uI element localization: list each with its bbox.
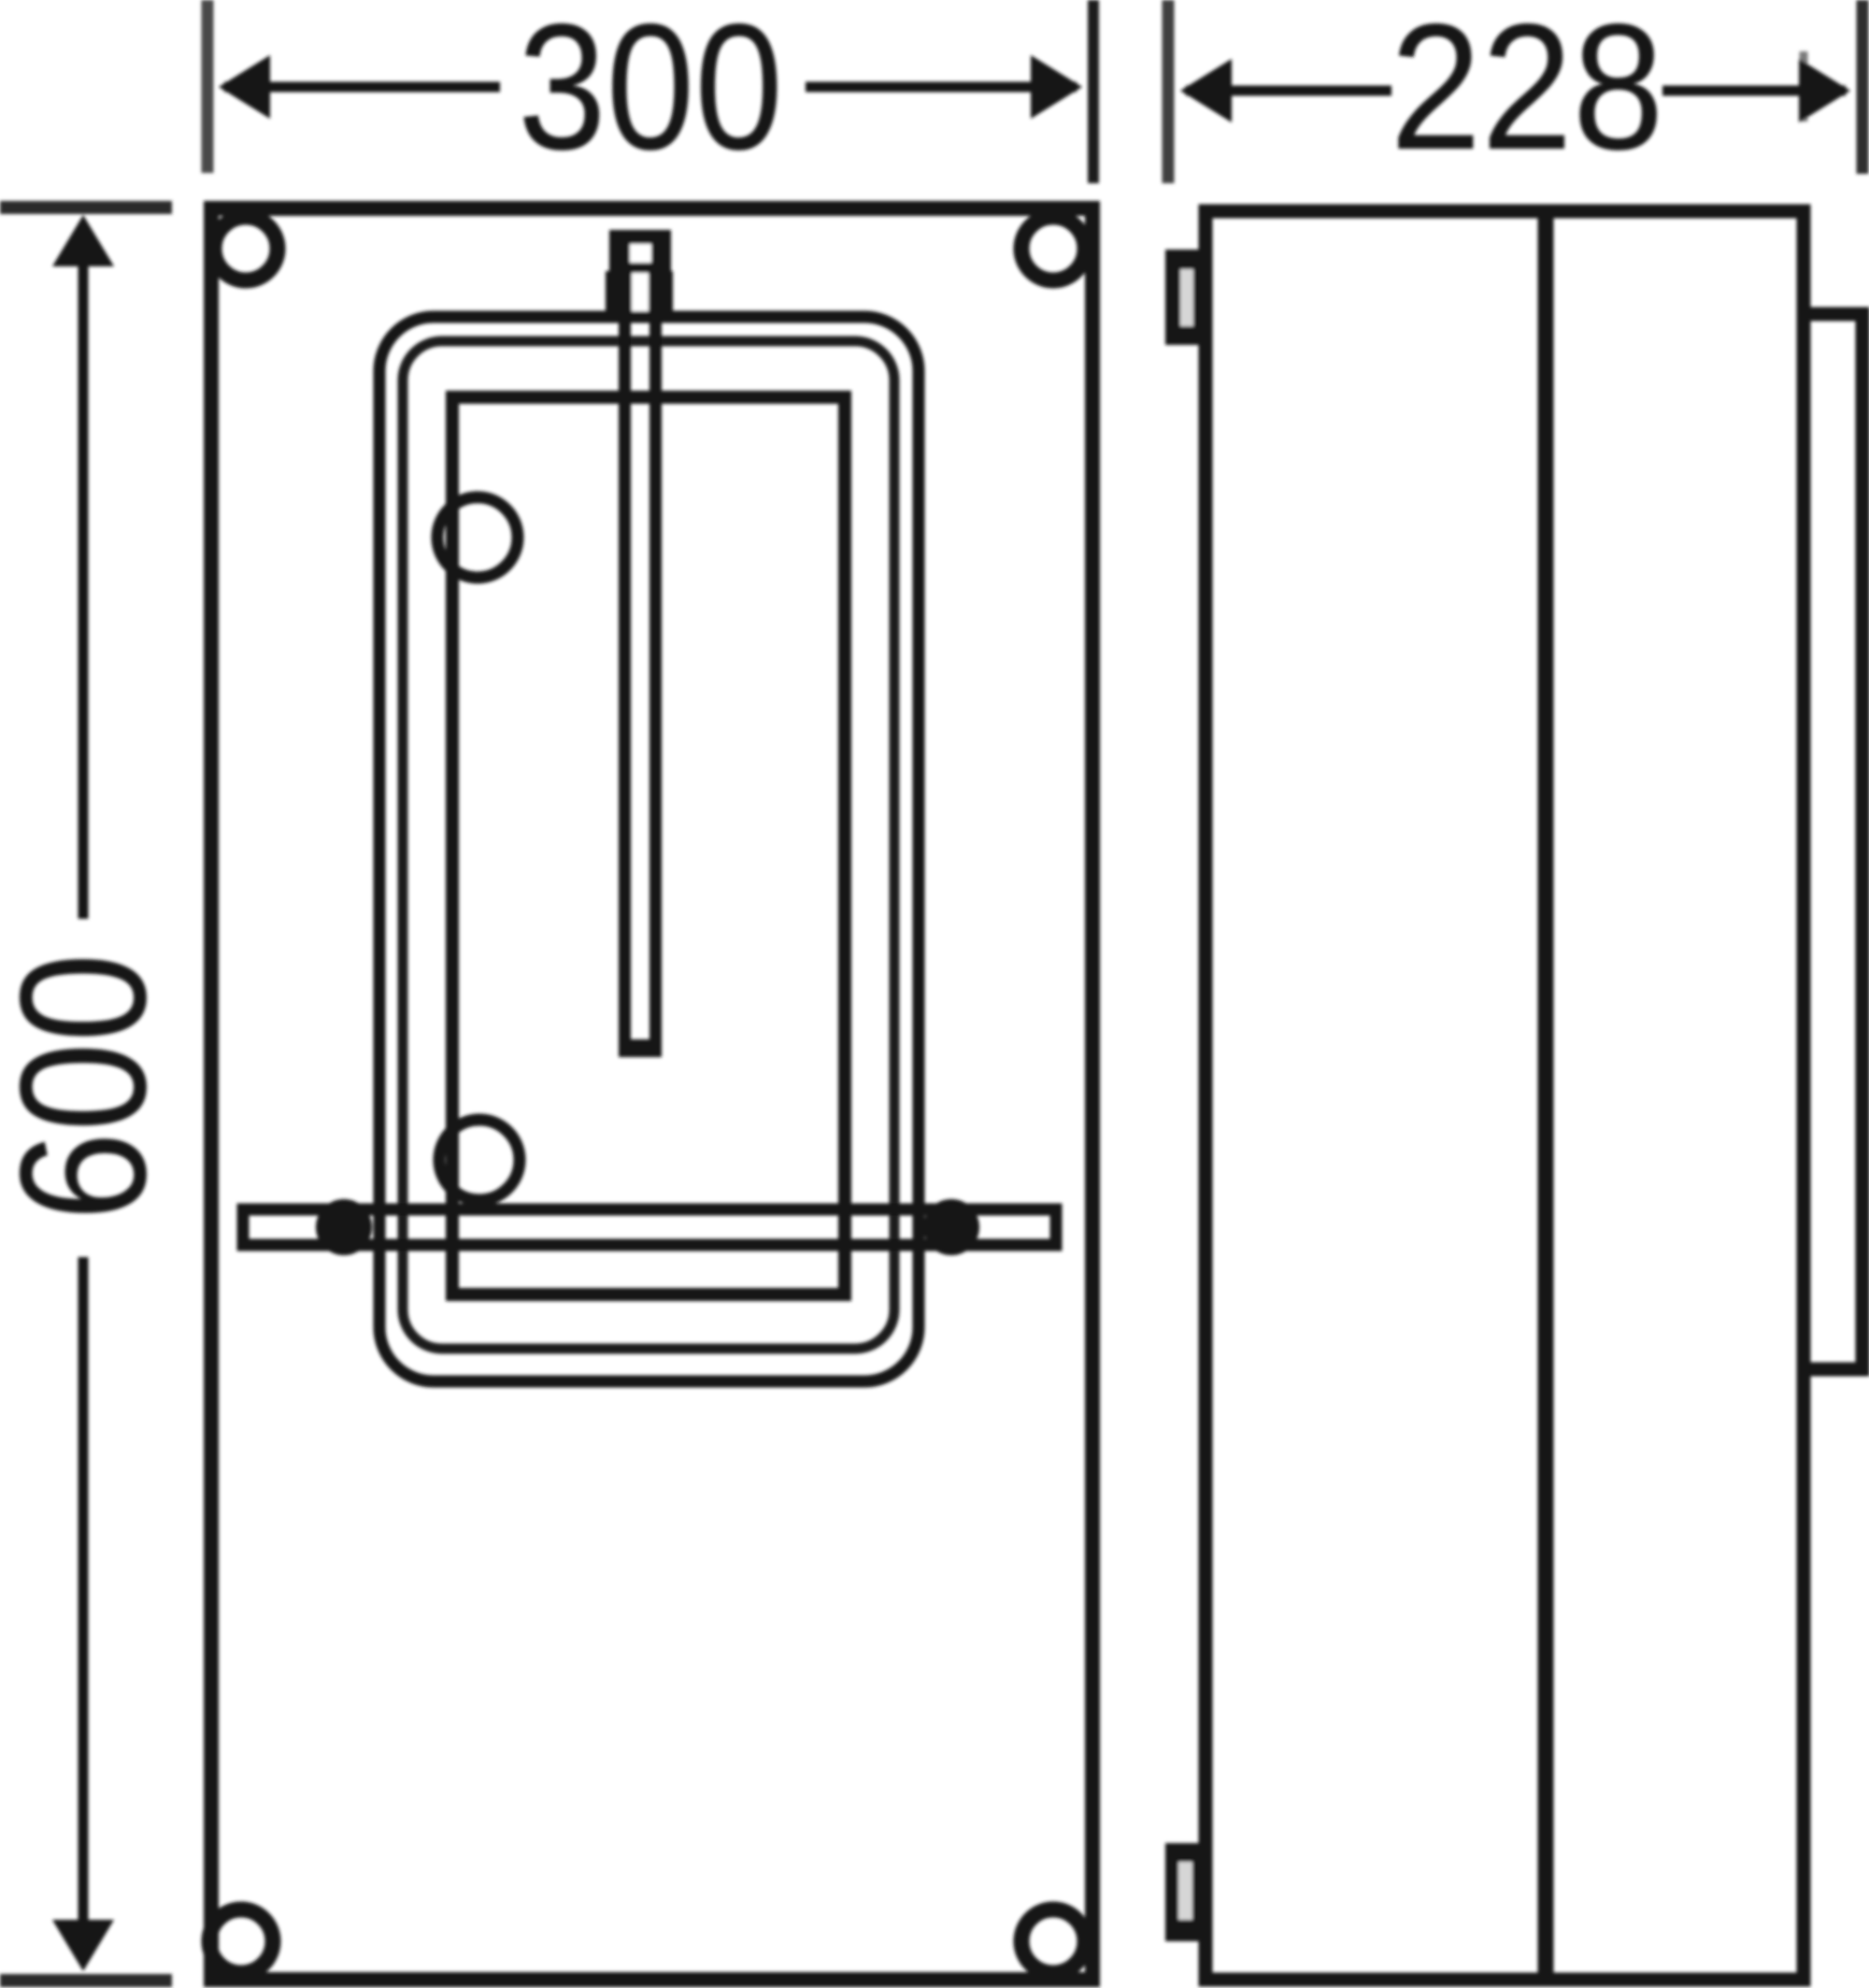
svg-text:228: 228 [1391, 0, 1664, 187]
svg-text:600: 600 [0, 953, 183, 1222]
svg-text:300: 300 [518, 0, 783, 187]
